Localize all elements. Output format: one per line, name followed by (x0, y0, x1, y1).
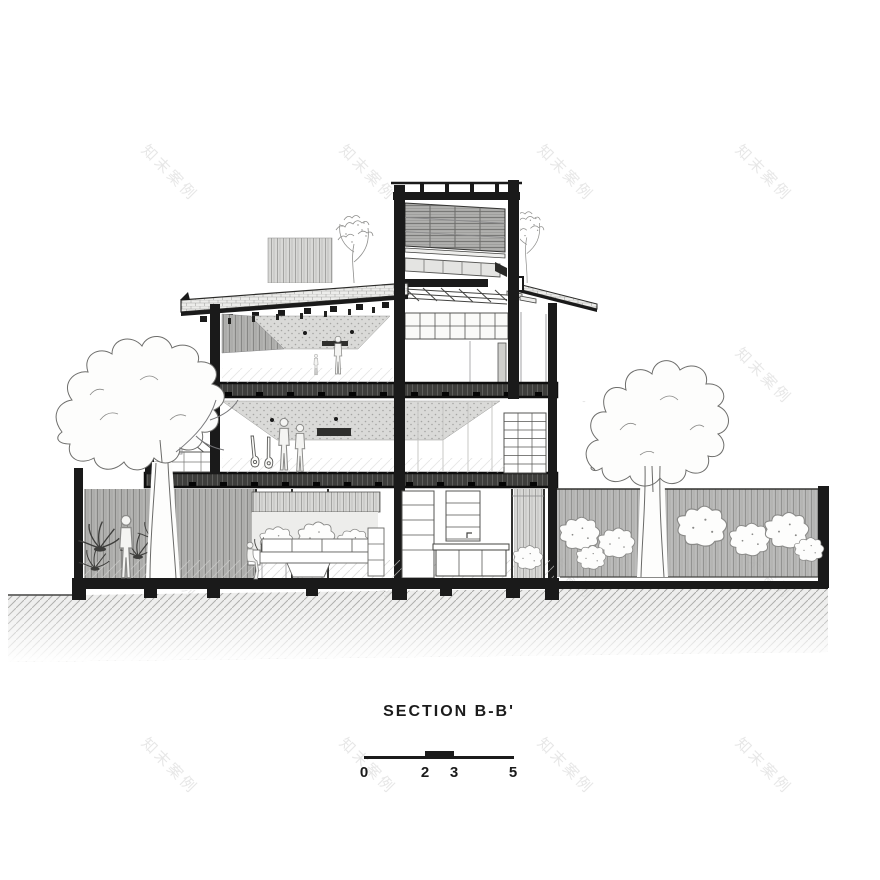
scale-label-0: 0 (354, 764, 374, 781)
sofa (248, 539, 380, 565)
scale-label-2: 2 (415, 764, 435, 781)
right-boundary-wall (818, 486, 829, 588)
ground-hatch (8, 585, 828, 662)
right-garden (556, 486, 829, 589)
shelf-niche (446, 491, 480, 541)
section-drawing (0, 0, 880, 880)
scale-bar: 0 2 3 5 (364, 750, 514, 782)
sheet: 知末案例 知末案例 知末案例 知末案例 知末案例 知末案例 知末案例 知末案例 … (0, 0, 880, 880)
tower-right-column (508, 180, 519, 399)
slat-screen (252, 492, 380, 512)
scale-bar-segment (425, 751, 454, 759)
tall-cabinet (402, 491, 434, 578)
coffee-table (287, 563, 330, 577)
scale-label-3: 3 (444, 764, 464, 781)
left-boundary-wall (74, 468, 83, 590)
kitchen-island (433, 544, 509, 576)
right-wall (548, 303, 557, 588)
drawing-title: SECTION B-B' (9, 703, 880, 721)
scale-label-5: 5 (503, 764, 523, 781)
